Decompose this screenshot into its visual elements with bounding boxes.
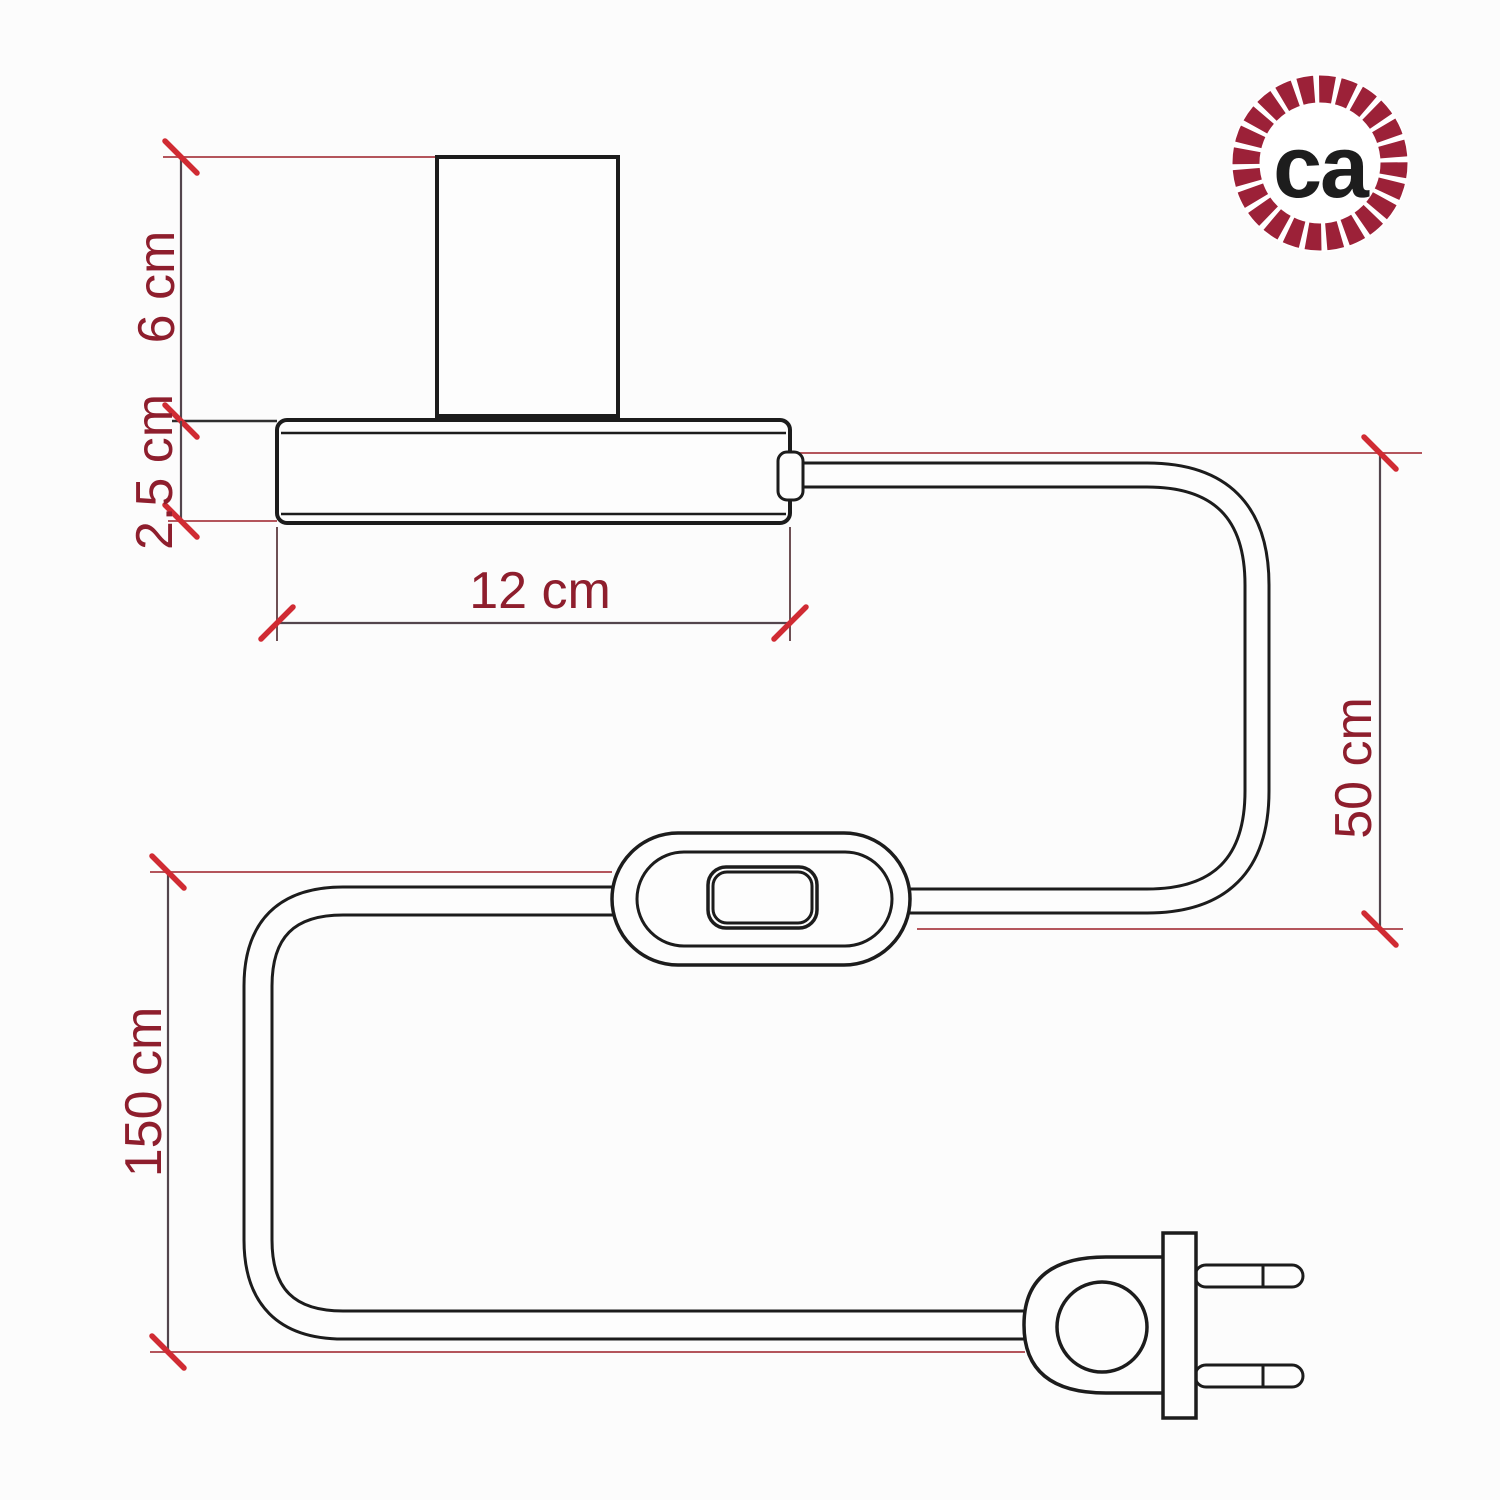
dimension-socket-height: 6 cm [128, 141, 437, 437]
cable-core [258, 901, 1028, 1325]
lamp-socket [437, 157, 618, 416]
dimension-label-socket-height: 6 cm [128, 231, 186, 344]
plug-prong-top [1195, 1265, 1303, 1287]
brand-logo: ca [1231, 74, 1409, 252]
logo-text: ca [1273, 117, 1370, 216]
cable-outline [258, 901, 1028, 1325]
lamp-base-body [277, 420, 790, 523]
lamp-dimension-diagram: 6 cm 2.5 cm 12 cm 50 cm [0, 0, 1500, 1500]
inline-switch [612, 833, 910, 965]
dimension-label-base-height: 2.5 cm [126, 394, 184, 550]
dimension-base-height: 2.5 cm [126, 394, 277, 550]
plug-prong-bottom [1195, 1365, 1303, 1387]
dimension-label-base-width: 12 cm [469, 562, 611, 620]
switch-button [708, 867, 817, 928]
plug-faceplate [1163, 1233, 1196, 1418]
power-cable-lower [258, 901, 1028, 1325]
dimension-base-width: 12 cm [261, 527, 806, 641]
dimension-label-cable-upper: 50 cm [1325, 697, 1383, 839]
cable-gland [778, 452, 803, 500]
lamp-drawing [258, 157, 1303, 1418]
dimension-label-cable-total: 150 cm [115, 1007, 173, 1178]
dimension-annotations: 6 cm 2.5 cm 12 cm 50 cm [115, 141, 1422, 1368]
power-plug [1024, 1233, 1303, 1418]
lamp-base [277, 420, 803, 523]
